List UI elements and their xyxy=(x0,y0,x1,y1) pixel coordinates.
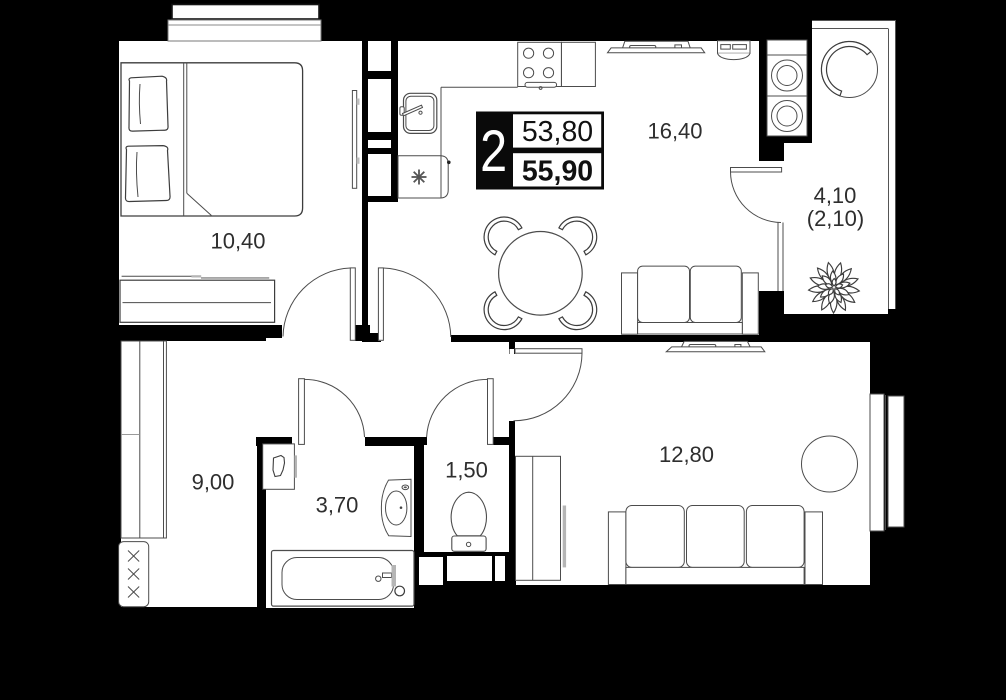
svg-text:55,90: 55,90 xyxy=(522,156,593,188)
svg-text:(2,10): (2,10) xyxy=(807,206,864,231)
svg-text:4,10: 4,10 xyxy=(814,183,857,208)
svg-text:12,80: 12,80 xyxy=(659,442,714,467)
svg-text:53,80: 53,80 xyxy=(522,116,593,148)
svg-text:3,70: 3,70 xyxy=(316,493,359,518)
svg-text:10,40: 10,40 xyxy=(210,229,265,254)
svg-text:9,00: 9,00 xyxy=(192,470,235,495)
svg-text:16,40: 16,40 xyxy=(647,118,702,143)
svg-text:2: 2 xyxy=(480,119,507,184)
svg-text:1,50: 1,50 xyxy=(445,458,488,483)
